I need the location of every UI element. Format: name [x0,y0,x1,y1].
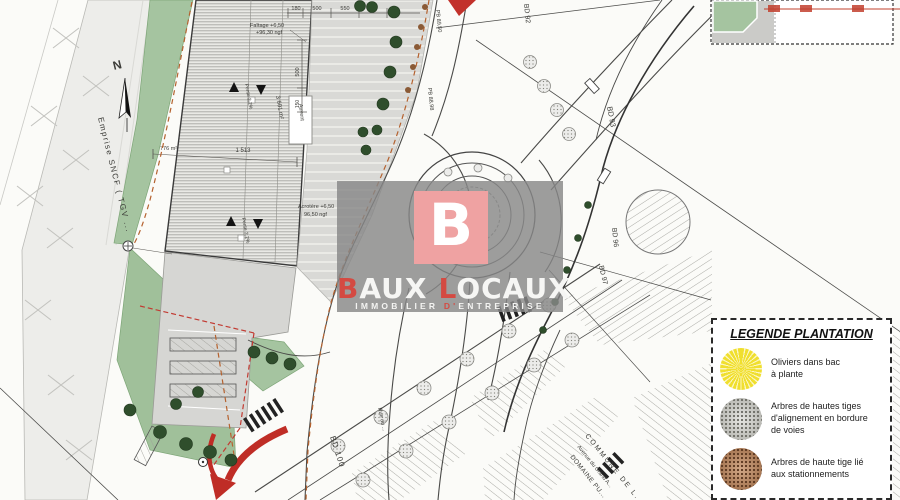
svg-text:500: 500 [312,6,321,12]
acrotere-label-2: 96,50 ngf [304,212,327,218]
plantation-legend: LEGENDE PLANTATION Oliviers dans bacà pl… [711,318,892,500]
hatched-circle-parcel [626,190,690,254]
legend-title: LEGENDE PLANTATION [720,327,883,341]
watermark-logo-letter: B [429,196,473,254]
olivier-symbol-icon [720,348,762,390]
legend-item-label: Arbres de hautes tigesd'alignement en bo… [771,401,868,436]
svg-text:180: 180 [291,6,300,12]
legend-item-alignement: Arbres de hautes tigesd'alignement en bo… [720,398,883,440]
legend-item-olivier: Oliviers dans bacà plante [720,348,883,390]
bd92-label: BD 92 [522,3,531,23]
ridge-label-2: +96,30 ngf [256,30,283,36]
watermark-tagline: IMMOBILIER D'ENTREPRISE [337,301,563,311]
bd97-label: BD 97 [597,265,608,286]
bd96-label: BD 96 [610,227,619,247]
svg-text:150: 150 [295,100,301,109]
arbre-alignement-symbol-icon [720,398,762,440]
red-flag-icon [448,0,476,16]
legend-item-label: Arbres de haute tige liéaux stationnemen… [771,457,864,480]
bd93-label: BD 93 [605,106,618,128]
pb-high-label: PB 89,50 [434,10,442,33]
pb-low-label: PB 88,98 [426,88,434,111]
arbre-stationnement-symbol-icon [720,448,762,490]
legend-item-label: Oliviers dans bacà plante [771,357,840,380]
site-plan: Pente 2,2% Pente 2,2% 3 601 m² 1 513 776… [0,0,900,500]
acrotere-label-1: Acrotère +6,50 [298,204,334,210]
watermark-logo: B [414,191,488,264]
svg-text:500: 500 [295,67,301,76]
building-length-label: 1 513 [235,148,251,154]
bd100-label: BD 100 [328,435,347,469]
detail-inset [711,0,900,44]
railway-corridor [0,0,165,500]
legend-item-stationnement: Arbres de haute tige liéaux stationnemen… [720,448,883,490]
ridge-label-1: Faîtage +6,50 [250,23,284,29]
svg-text:550: 550 [340,6,349,12]
